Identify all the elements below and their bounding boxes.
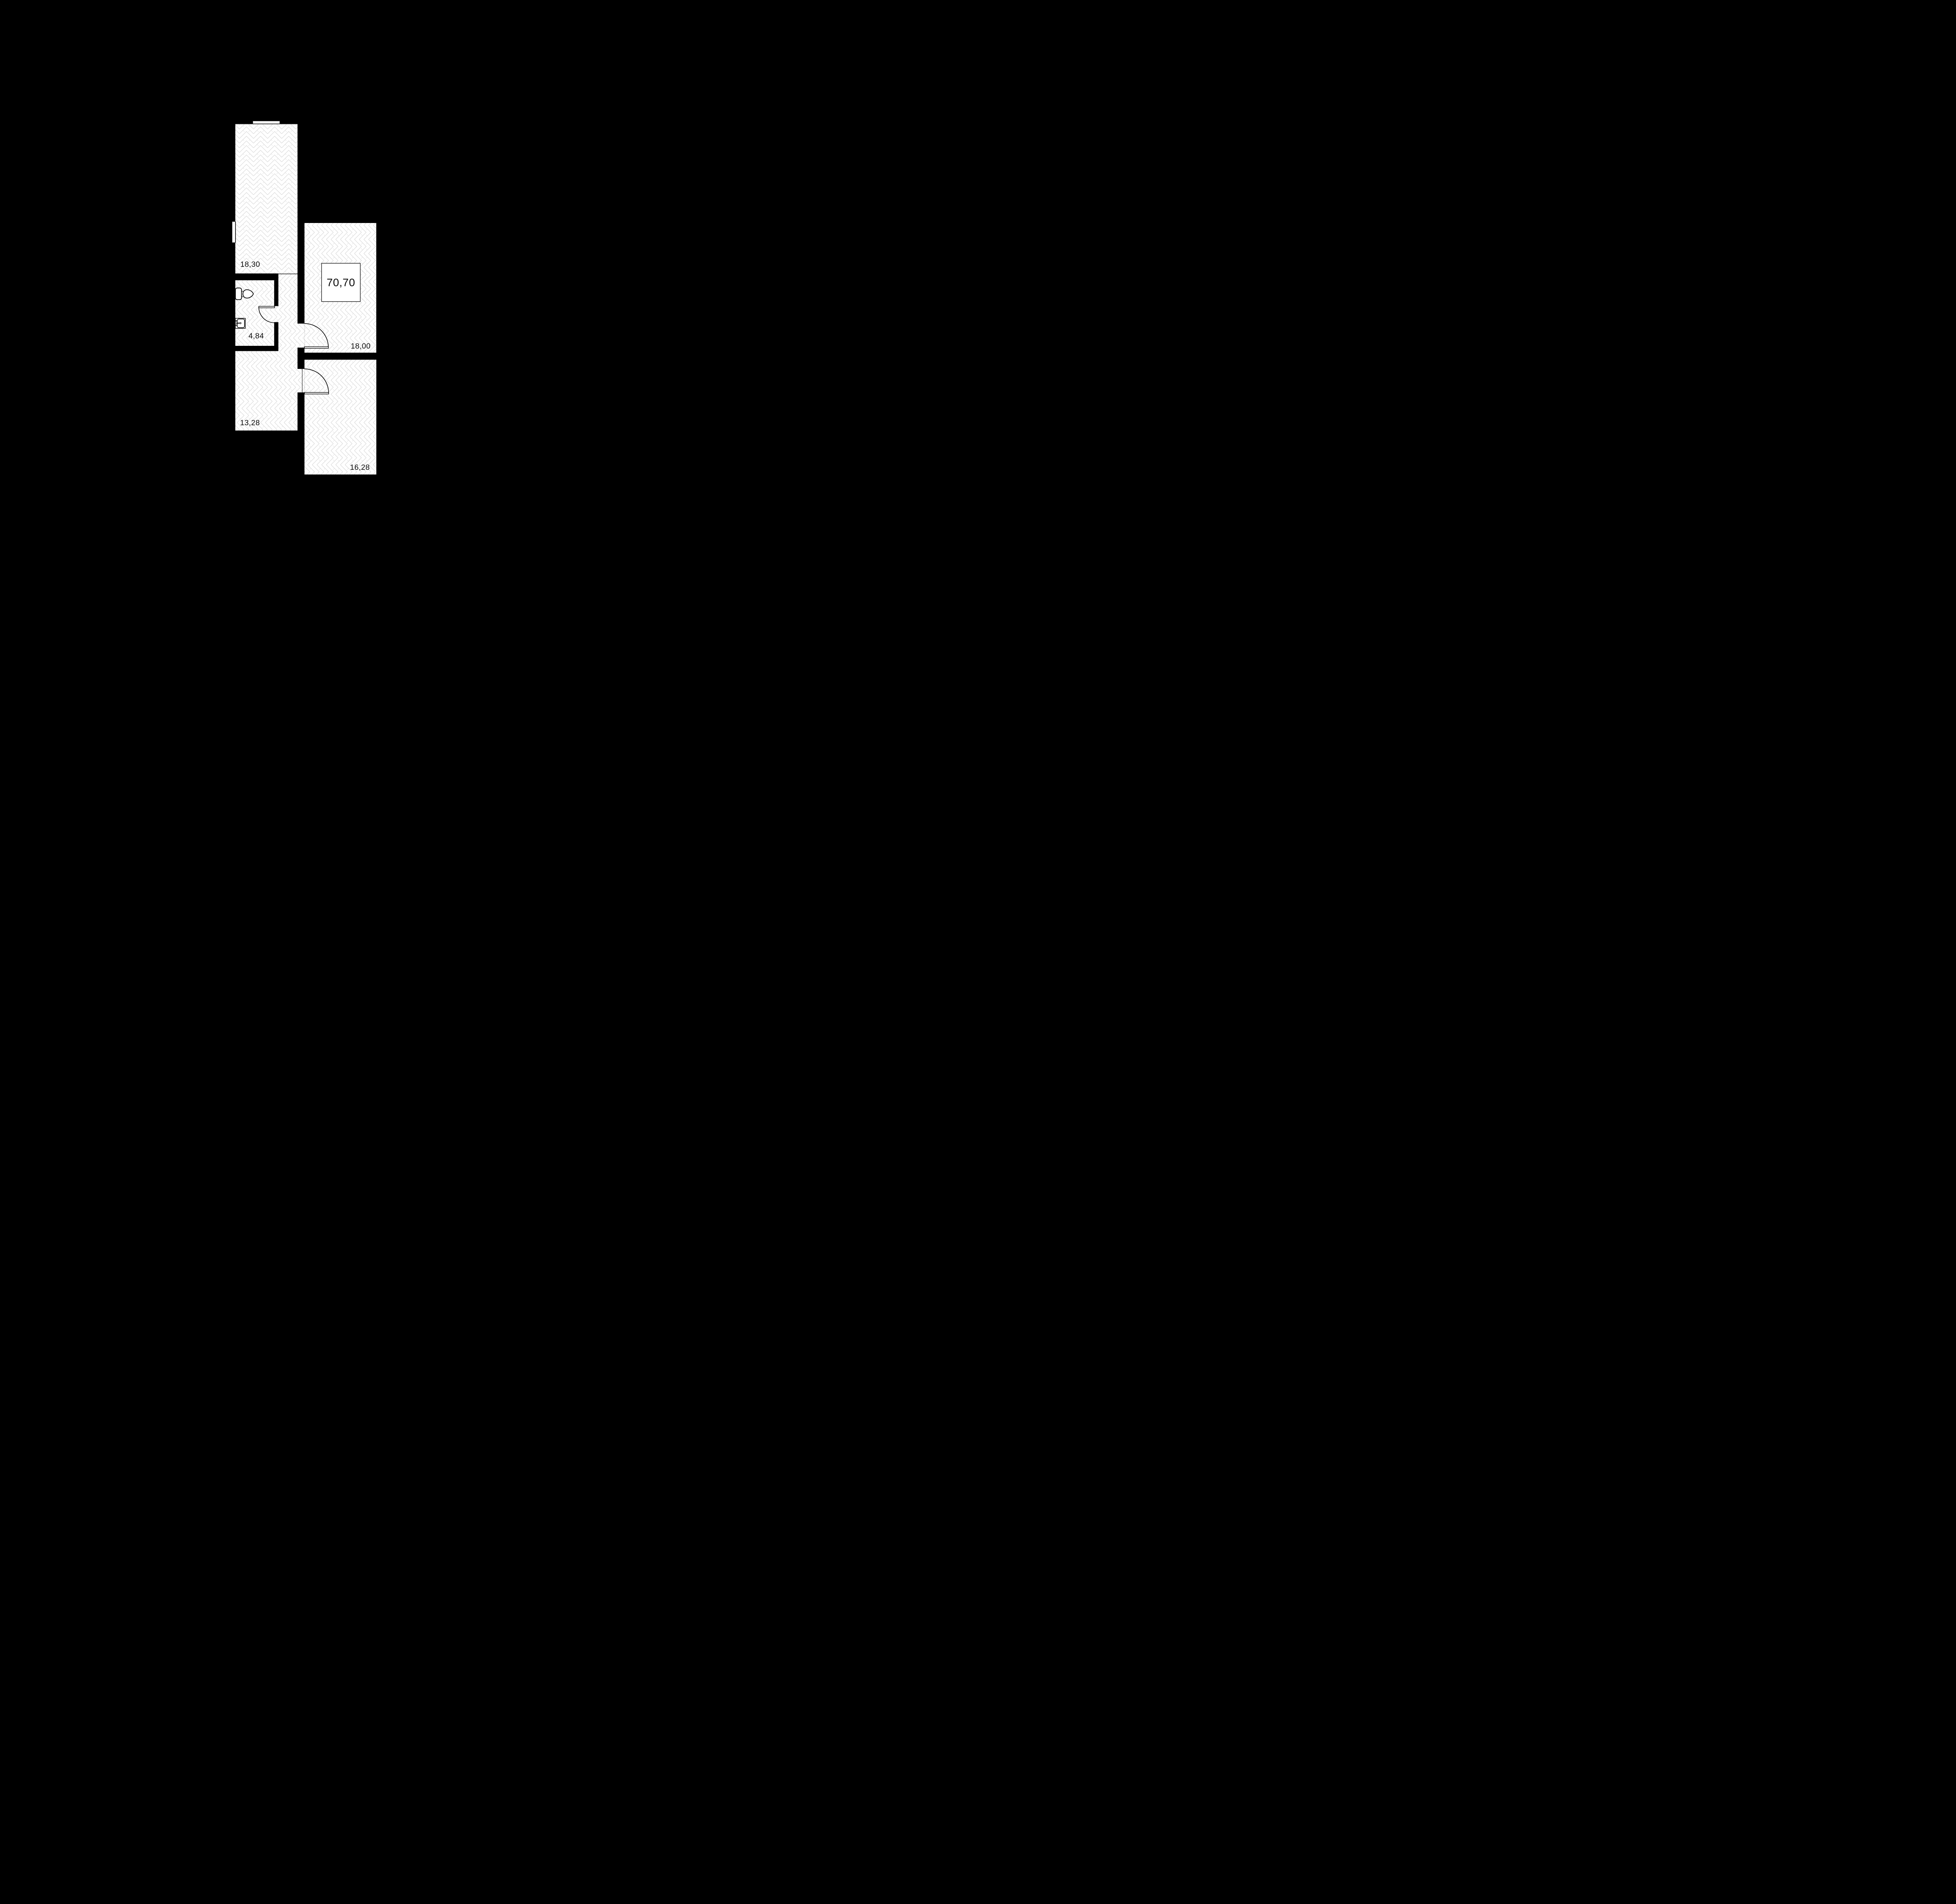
bathroom-door-leaf xyxy=(259,306,275,308)
room-right-door-leaf xyxy=(304,347,328,348)
room-bottom-right-floor xyxy=(304,360,376,475)
hall-wall-lower xyxy=(298,392,305,475)
bathroom-area-label: 4,84 xyxy=(248,332,264,340)
room-bottom-right-door-leaf xyxy=(304,392,329,394)
floor-plan-canvas: 70,70 18,30 4,84 18,00 13,28 16,28 xyxy=(0,0,612,571)
total-area-value: 70,70 xyxy=(327,277,355,289)
corridor-area-label: 13,28 xyxy=(240,419,260,427)
bathroom-wall-top xyxy=(236,273,279,280)
bathroom-door-opening xyxy=(274,306,279,322)
hall-wall-upper xyxy=(298,223,305,324)
hall-wall-middle xyxy=(298,348,305,369)
room-bottom-right-door-opening xyxy=(298,369,305,392)
bathroom-wall-bottom xyxy=(236,346,279,351)
room-top-area-label: 18,30 xyxy=(240,260,260,269)
room-right-area-label: 18,00 xyxy=(351,342,371,351)
window-icon xyxy=(232,221,235,243)
wall-between-right-rooms xyxy=(304,353,376,360)
total-area-badge: 70,70 xyxy=(322,263,360,302)
room-top-floor xyxy=(236,124,298,274)
toilet-tank xyxy=(236,288,242,300)
bathroom-wall-right-upper xyxy=(274,280,279,306)
room-right-door-opening xyxy=(298,324,305,348)
floor-plan-drawing: 70,70 18,30 4,84 18,00 13,28 16,28 xyxy=(0,0,612,571)
sink-icon xyxy=(236,318,246,329)
bathroom-wall-right-lower xyxy=(274,322,279,346)
room-bottom-right-area-label: 16,28 xyxy=(350,463,370,472)
